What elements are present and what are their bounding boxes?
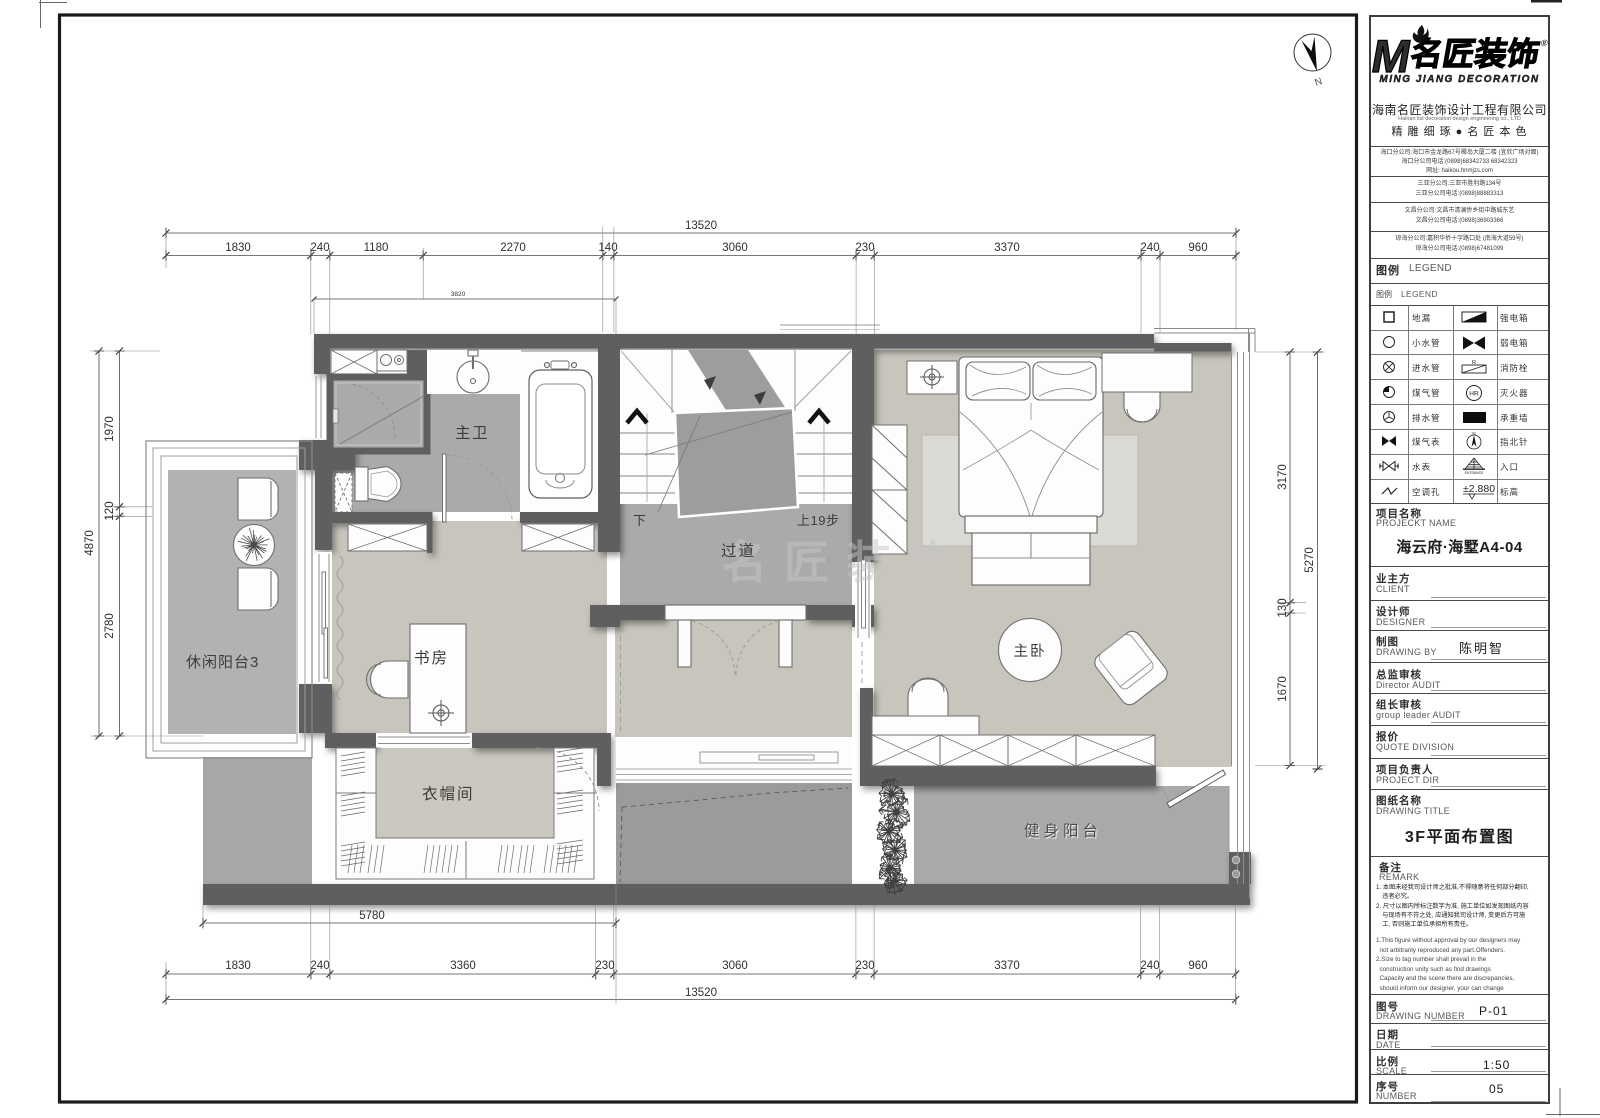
svg-text:下: 下 — [633, 513, 646, 528]
svg-text:140: 140 — [598, 242, 617, 254]
svg-text:3060: 3060 — [722, 960, 748, 972]
svg-text:1180: 1180 — [364, 242, 389, 254]
svg-text:休闲阳台3: 休闲阳台3 — [186, 654, 259, 671]
svg-text:3170: 3170 — [1277, 464, 1289, 490]
svg-text:HR: HR — [1469, 390, 1479, 397]
svg-text:2780: 2780 — [104, 613, 116, 639]
svg-text:3820: 3820 — [451, 291, 466, 298]
svg-text:过道: 过道 — [721, 542, 756, 560]
svg-text:±2.880: ±2.880 — [1463, 483, 1495, 495]
svg-text:主卫: 主卫 — [455, 424, 489, 442]
svg-text:120: 120 — [104, 501, 116, 520]
svg-text:1970: 1970 — [104, 416, 116, 442]
svg-text:主卧: 主卧 — [1014, 643, 1047, 660]
svg-text:衣帽间: 衣帽间 — [422, 785, 475, 803]
svg-text:960: 960 — [1188, 242, 1207, 254]
svg-text:230: 230 — [855, 242, 874, 254]
svg-text:240: 240 — [310, 960, 329, 972]
svg-text:书房: 书房 — [414, 649, 449, 667]
svg-text:1830: 1830 — [225, 960, 251, 972]
svg-text:ENTRANCE: ENTRANCE — [1465, 471, 1484, 475]
svg-text:240: 240 — [1140, 242, 1159, 254]
svg-text:230: 230 — [855, 960, 874, 972]
svg-text:5270: 5270 — [1304, 547, 1316, 573]
svg-text:240: 240 — [310, 242, 329, 254]
svg-text:3370: 3370 — [994, 960, 1020, 972]
svg-text:960: 960 — [1188, 960, 1207, 972]
svg-text:名匠装饰: 名匠装饰 — [722, 537, 970, 588]
svg-text:13520: 13520 — [685, 220, 717, 232]
svg-text:230: 230 — [595, 960, 614, 972]
svg-text:1830: 1830 — [225, 242, 251, 254]
svg-text:3370: 3370 — [994, 242, 1020, 254]
svg-text:130: 130 — [1277, 598, 1289, 617]
svg-text:4870: 4870 — [84, 530, 96, 556]
svg-text:13520: 13520 — [685, 987, 717, 999]
svg-text:3060: 3060 — [722, 242, 748, 254]
svg-text:健身阳台: 健身阳台 — [1024, 822, 1102, 840]
svg-text:2270: 2270 — [500, 242, 526, 254]
svg-text:N: N — [1472, 432, 1475, 436]
svg-text:N: N — [1314, 76, 1324, 89]
svg-text:240: 240 — [1140, 960, 1159, 972]
svg-text:1670: 1670 — [1277, 676, 1289, 702]
svg-text:3360: 3360 — [450, 960, 476, 972]
svg-text:5780: 5780 — [359, 910, 385, 922]
svg-text:上19步: 上19步 — [797, 513, 839, 528]
